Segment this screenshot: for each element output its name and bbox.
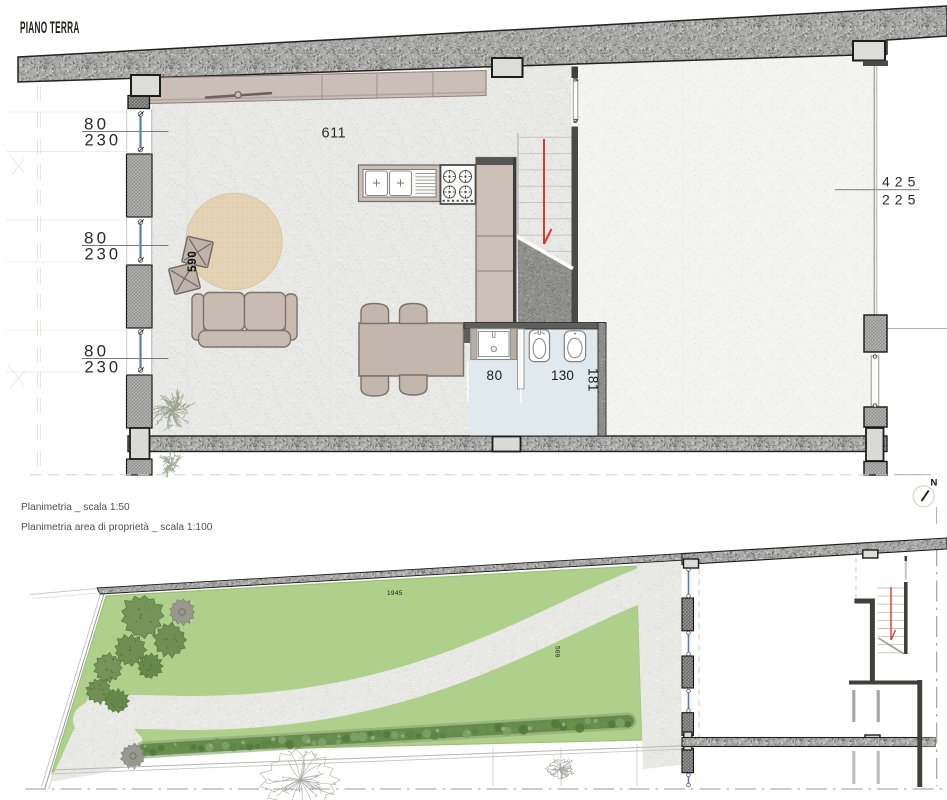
svg-text:611: 611 [322, 126, 347, 142]
svg-text:230: 230 [85, 245, 122, 263]
svg-text:N: N [931, 478, 938, 489]
svg-text:425: 425 [882, 174, 920, 190]
svg-text:Planimetria _ scala 1:50: Planimetria _ scala 1:50 [21, 502, 130, 513]
svg-text:230: 230 [85, 358, 122, 376]
svg-text:Planimetria area di proprietà: Planimetria area di proprietà _ scala 1:… [21, 522, 213, 533]
svg-text:130: 130 [551, 368, 574, 383]
svg-text:230: 230 [85, 131, 122, 149]
svg-text:225: 225 [882, 192, 920, 208]
svg-text:1945: 1945 [387, 590, 403, 597]
svg-text:80: 80 [487, 368, 503, 383]
svg-text:181: 181 [586, 368, 601, 392]
svg-text:569: 569 [554, 646, 561, 658]
svg-text:PIANO TERRA: PIANO TERRA [20, 18, 80, 37]
svg-text:590: 590 [187, 250, 199, 272]
